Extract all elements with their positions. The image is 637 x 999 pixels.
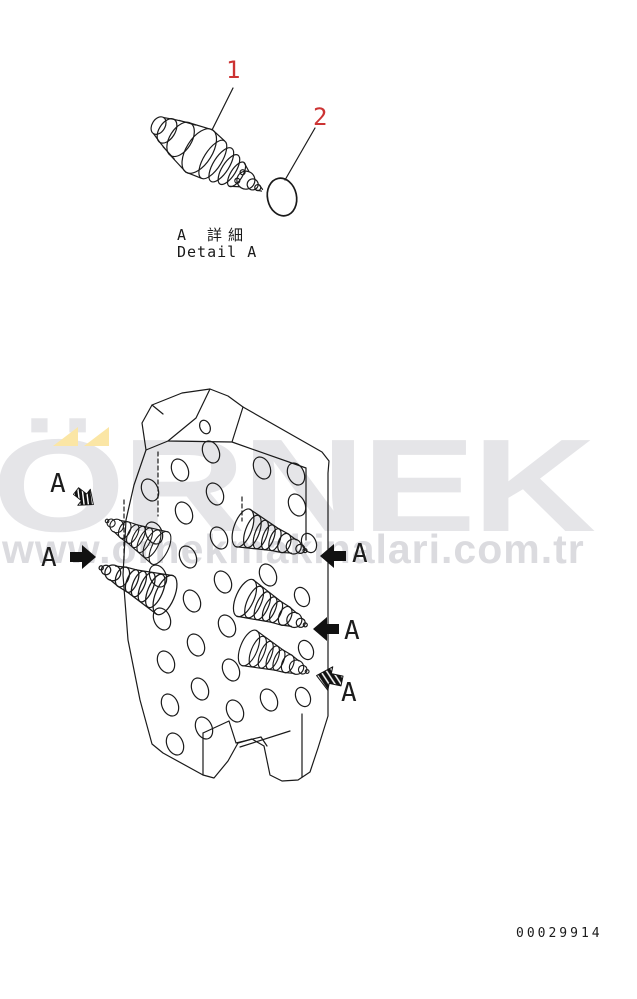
detail-caption-english: Detail A	[177, 243, 257, 261]
section-arrows	[70, 483, 346, 693]
document-number: 00029914	[516, 926, 603, 941]
section-arrow-hatched-up-left-icon	[314, 664, 344, 693]
callout-number-1: 1	[226, 58, 240, 82]
section-arrow-hatched-down-right-icon	[70, 483, 100, 513]
solenoid-cartridge-left-lower	[91, 548, 182, 618]
callout-1-leader-line	[212, 88, 233, 130]
solenoid-cartridge-left-upper	[97, 504, 175, 568]
view-label-a: A	[344, 618, 360, 644]
solenoid-valve-plug-drawing	[140, 101, 275, 211]
o-ring-drawing	[264, 175, 300, 218]
callout-2-leader-line	[285, 128, 315, 180]
view-label-a: A	[341, 680, 357, 706]
view-label-a: A	[352, 541, 368, 567]
parts-diagram-page: ÖRNEK www.ornekmakinalari.com.tr	[0, 0, 637, 999]
section-arrow-solid-left-icon	[320, 544, 346, 568]
detail-a-section	[140, 88, 315, 219]
technical-line-drawing	[0, 0, 637, 999]
valve-block-drawing	[91, 389, 329, 781]
view-label-a: A	[50, 471, 66, 497]
detail-caption-japanese: A 詳細	[177, 224, 249, 245]
callout-number-2: 2	[313, 105, 327, 129]
port-holes	[138, 419, 319, 758]
section-arrow-solid-right-icon	[70, 545, 96, 569]
section-arrow-solid-left-icon	[313, 617, 339, 641]
view-label-a: A	[41, 545, 57, 571]
